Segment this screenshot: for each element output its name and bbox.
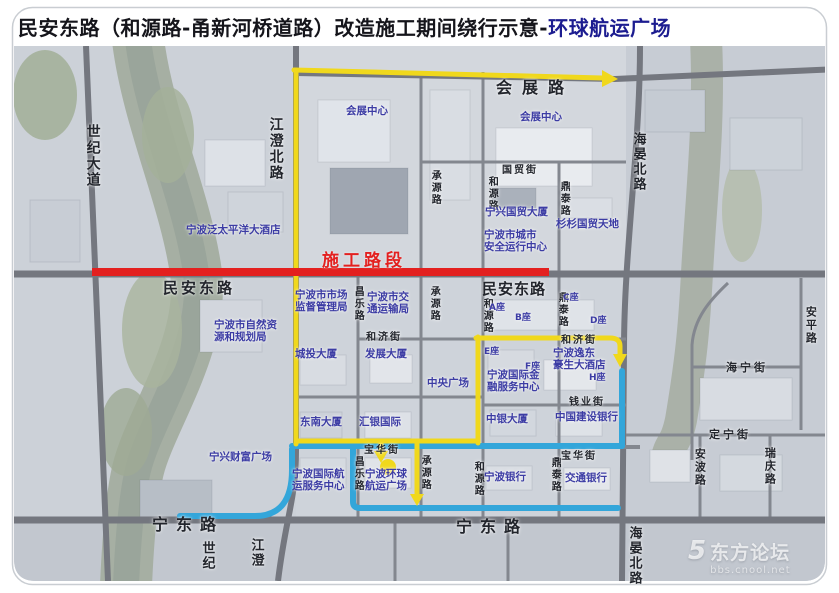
watermark-site: 东方论坛: [710, 538, 791, 565]
construction-section-label: 施工路段: [322, 246, 406, 271]
watermark-url: bbs.cnool.net: [710, 565, 791, 576]
map-canvas: [0, 0, 839, 593]
destination-marker: [380, 459, 396, 475]
forum-logo-icon: 5: [688, 538, 706, 564]
detour-notice-card: 民安东路（和源路-甬新河桥道路）改造施工期间绕行示意-环球航运广场: [0, 0, 839, 593]
watermark: 5 东方论坛 bbs.cnool.net: [688, 538, 791, 576]
